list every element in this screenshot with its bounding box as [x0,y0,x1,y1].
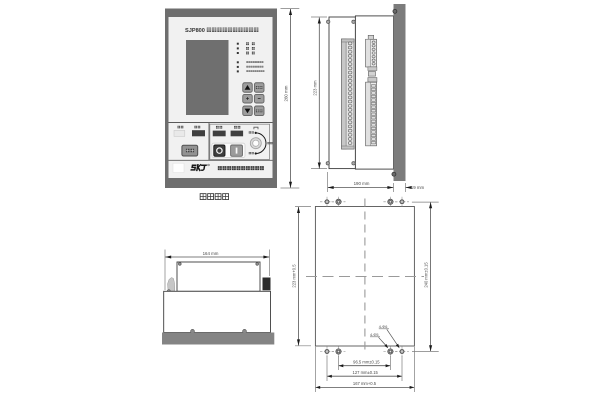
svg-text:167 mm+0.5: 167 mm+0.5 [353,381,377,386]
svg-text:96.5 mm±0.15: 96.5 mm±0.15 [353,359,380,364]
svg-text:4-Φ5: 4-Φ5 [370,333,379,337]
svg-text:190 mm: 190 mm [354,181,370,186]
svg-text:260 mm: 260 mm [284,85,289,101]
svg-text:19 mm: 19 mm [411,185,425,190]
svg-text:127 mm±0.15: 127 mm±0.15 [353,370,379,375]
svg-text:223 mm: 223 mm [313,80,318,96]
svg-text:SJP800: SJP800 [185,28,205,34]
svg-text:240 mm±0.15: 240 mm±0.15 [423,262,428,288]
svg-text:164 mm: 164 mm [203,251,219,256]
svg-text:223 mm+0.5: 223 mm+0.5 [292,264,297,288]
svg-text:4-Φ6: 4-Φ6 [379,325,388,329]
